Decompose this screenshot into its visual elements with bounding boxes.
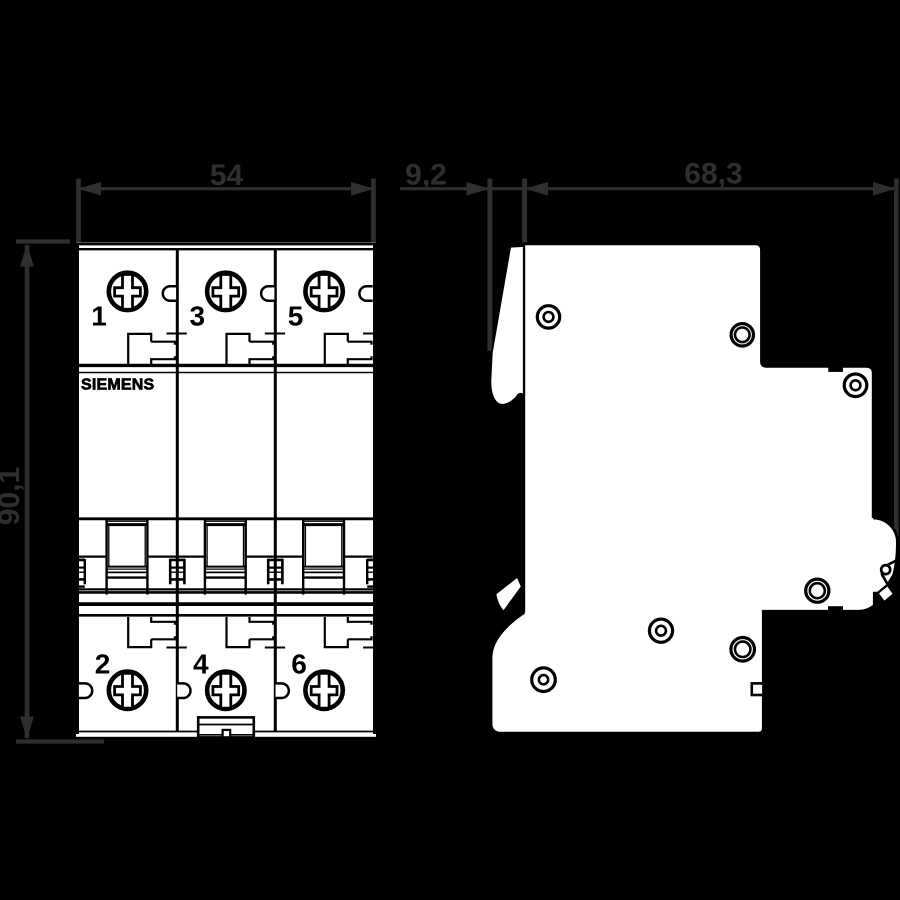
- svg-text:5: 5: [288, 301, 304, 332]
- svg-text:SIEMENS: SIEMENS: [81, 377, 155, 394]
- svg-text:3: 3: [190, 301, 206, 332]
- svg-text:68,3: 68,3: [684, 158, 742, 191]
- svg-text:2: 2: [95, 649, 111, 680]
- svg-text:9,2: 9,2: [405, 158, 447, 191]
- svg-text:6: 6: [291, 649, 307, 680]
- svg-text:90,1: 90,1: [0, 467, 26, 525]
- svg-text:54: 54: [210, 159, 244, 192]
- svg-text:1: 1: [91, 301, 107, 332]
- svg-text:4: 4: [193, 649, 209, 680]
